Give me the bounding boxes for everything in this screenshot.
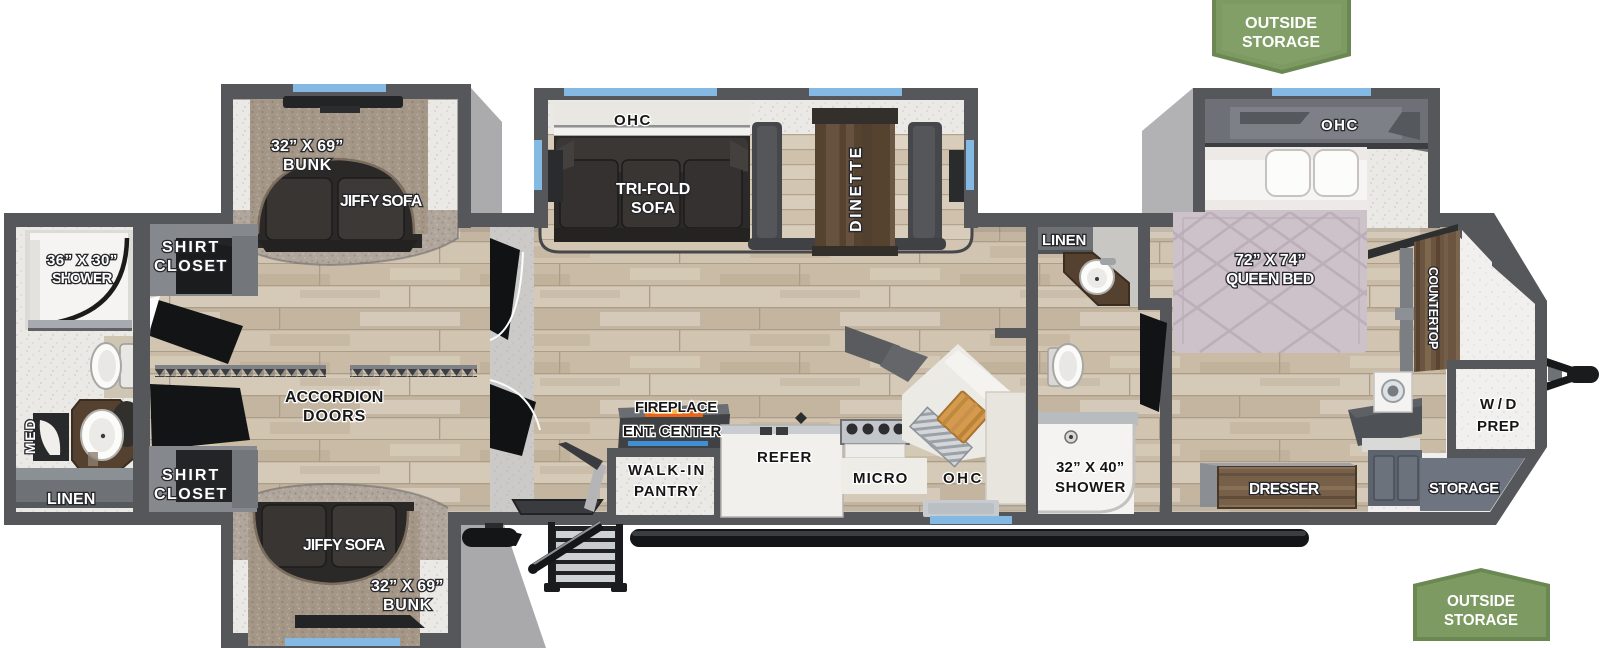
svg-text:LINEN: LINEN <box>47 491 95 508</box>
svg-text:MED: MED <box>23 419 38 454</box>
svg-text:REFER: REFER <box>757 449 811 466</box>
svg-text:STORAGE: STORAGE <box>1429 480 1499 497</box>
svg-text:OHC: OHC <box>1321 117 1357 134</box>
svg-text:JIFFY SOFA: JIFFY SOFA <box>303 537 386 554</box>
svg-text:BUNK: BUNK <box>283 157 332 174</box>
svg-text:OHC: OHC <box>943 470 981 487</box>
svg-text:OHC: OHC <box>614 112 650 129</box>
svg-text:TRI-FOLD: TRI-FOLD <box>616 181 690 198</box>
svg-text:PREP: PREP <box>1477 418 1519 435</box>
svg-text:DOORS: DOORS <box>303 408 366 425</box>
svg-text:STORAGE: STORAGE <box>1444 612 1518 629</box>
svg-text:SOFA: SOFA <box>631 200 676 217</box>
svg-text:SHIRT: SHIRT <box>162 239 219 256</box>
svg-text:FIREPLACE: FIREPLACE <box>635 399 717 416</box>
svg-text:PANTRY: PANTRY <box>634 483 698 500</box>
svg-text:OUTSIDE: OUTSIDE <box>1447 593 1515 610</box>
svg-text:LINEN: LINEN <box>1042 232 1086 249</box>
svg-text:COUNTERTOP: COUNTERTOP <box>1426 267 1440 349</box>
svg-text:ENT. CENTER: ENT. CENTER <box>623 423 721 440</box>
svg-text:32” X 69”: 32” X 69” <box>371 578 443 595</box>
svg-text:32” X 40”: 32” X 40” <box>1056 459 1124 476</box>
svg-text:SHOWER: SHOWER <box>52 270 112 287</box>
svg-text:W/D: W/D <box>1480 396 1516 413</box>
svg-text:BUNK: BUNK <box>383 597 432 614</box>
svg-text:SHOWER: SHOWER <box>1055 479 1125 496</box>
svg-text:36” X 30”: 36” X 30” <box>47 252 117 269</box>
svg-text:ACCORDION: ACCORDION <box>285 389 383 406</box>
svg-text:STORAGE: STORAGE <box>1242 34 1320 51</box>
svg-text:72” X 74”: 72” X 74” <box>1235 252 1305 269</box>
svg-text:MICRO: MICRO <box>853 470 908 487</box>
svg-text:JIFFY SOFA: JIFFY SOFA <box>340 193 423 210</box>
svg-text:CLOSET: CLOSET <box>154 258 227 275</box>
svg-text:32” X 69”: 32” X 69” <box>271 138 343 155</box>
svg-text:DRESSER: DRESSER <box>1249 481 1320 498</box>
svg-text:SHIRT: SHIRT <box>162 467 219 484</box>
svg-text:QUEEN BED: QUEEN BED <box>1226 271 1314 288</box>
svg-text:CLOSET: CLOSET <box>154 486 227 503</box>
svg-text:OUTSIDE: OUTSIDE <box>1245 15 1317 32</box>
